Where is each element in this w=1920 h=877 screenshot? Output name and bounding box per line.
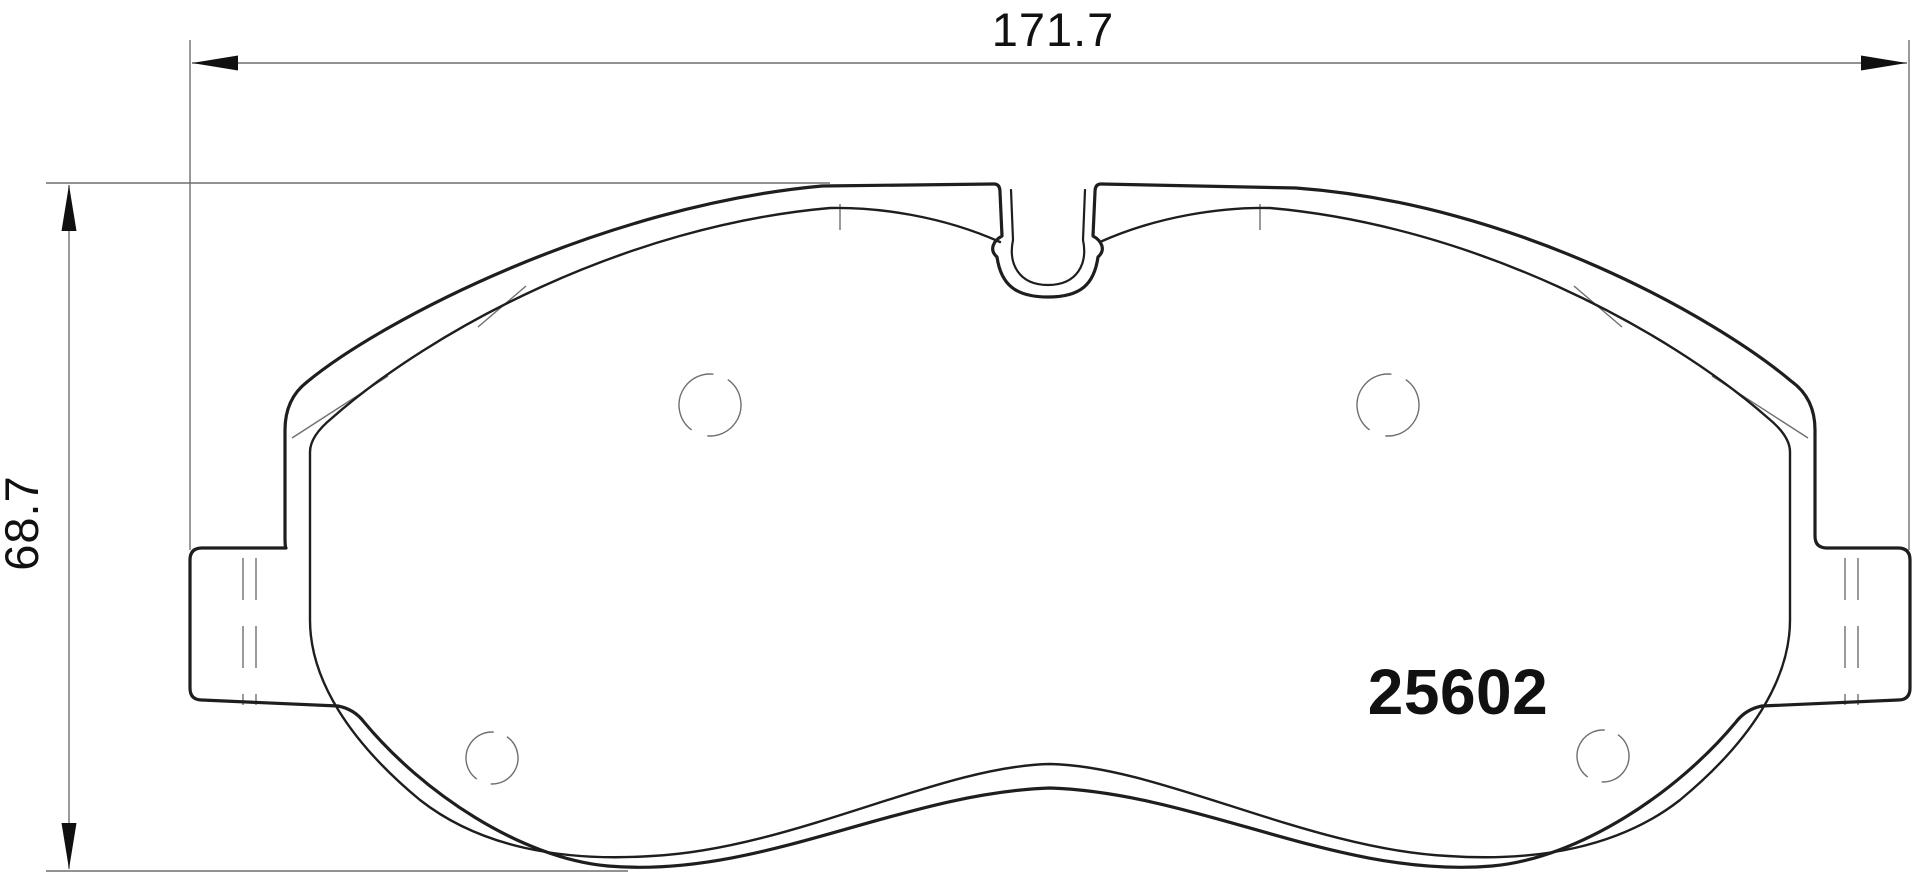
height-arrow-top [62, 185, 77, 231]
height-arrow-bottom [62, 823, 77, 869]
width-dimension-value: 171.7 [992, 3, 1115, 56]
friction-material-inner-outline [310, 208, 1790, 857]
hole-circle-top-right [1345, 362, 1431, 448]
hole-circle-bottom-left [456, 722, 528, 794]
hole-circle-bottom-right [1567, 720, 1639, 792]
width-arrow-right [1861, 56, 1907, 71]
center-cutout-inner-line [1011, 190, 1085, 285]
dimension-arrows-group [62, 56, 1908, 870]
part-number-label: 25602 [1368, 656, 1548, 728]
thin-lines-group [46, 40, 1909, 871]
hole-circle-top-left [667, 362, 753, 448]
pad-outlines-group [190, 184, 1910, 867]
width-arrow-left [192, 56, 238, 71]
drawing-canvas: 171.7 68.7 25602 [0, 0, 1920, 877]
brake-pad-technical-drawing: 171.7 68.7 25602 [0, 0, 1920, 877]
height-dimension-value: 68.7 [0, 475, 48, 570]
